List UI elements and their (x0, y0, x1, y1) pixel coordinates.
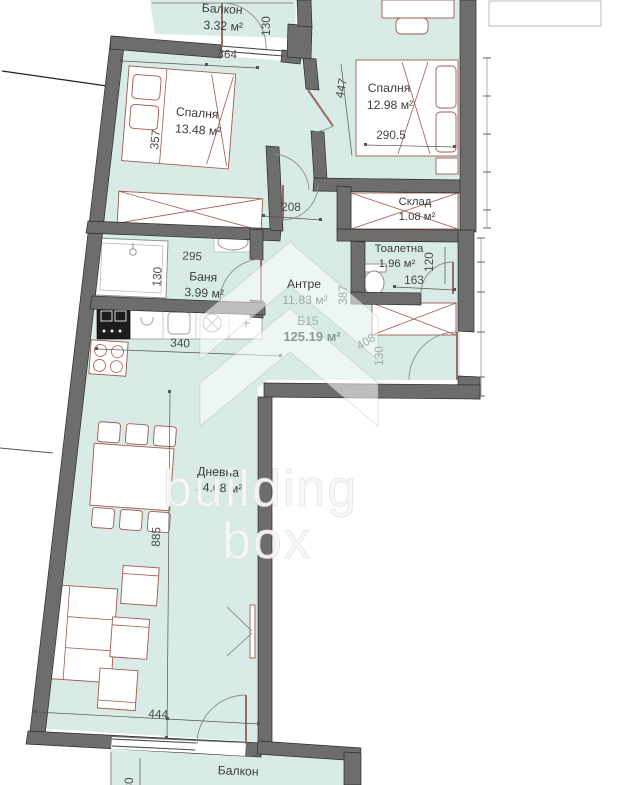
dim-living-len: 885 (149, 526, 164, 547)
dim-living-width: 444 (148, 706, 169, 721)
dim-kitchen: 340 (170, 336, 191, 351)
label-balcony-top-area: 3.32 м² (203, 18, 243, 34)
label-toilet-area: 1.96 м² (379, 258, 416, 270)
label-bedroom-left-name: Спалня (176, 105, 219, 122)
label-storage-name: Склад (399, 196, 432, 208)
label-hallway-area: 11.83 м² (282, 293, 327, 307)
dim-corridor: 208 (281, 200, 301, 214)
dim-balcony-bottom-depth: 80 (122, 777, 136, 785)
label-bedroom-right-name: Спалня (368, 81, 411, 95)
kitchen-appliance (97, 307, 130, 339)
dim-hall-c: 130 (372, 346, 386, 366)
label-toilet-name: Тоалетна (375, 243, 424, 255)
dim-top-width: 364 (217, 46, 238, 61)
label-bathroom-name: Баня (189, 269, 218, 284)
stove (89, 340, 128, 376)
label-unit-id: Б15 (297, 314, 319, 328)
label-hallway-name: Антре (287, 277, 321, 291)
wardrobe-hallway (372, 303, 456, 335)
dim-toilet-depth: 120 (422, 252, 436, 272)
dim-bed-right-width: 290.5 (376, 128, 406, 142)
dim-bath-width: 295 (182, 248, 203, 263)
dim-balcony-top-depth: 130 (259, 16, 273, 36)
watermark-line1: building (163, 460, 358, 518)
label-balcony-bottom-name: Балкон (217, 763, 258, 778)
floor-plan-page: Балкон 3.32 м² 364 130 Спалня 13.48 м² 3… (0, 0, 625, 785)
label-bedroom-right-area: 12.98 м² (367, 98, 413, 112)
label-storage-area: 1.08 м² (399, 211, 436, 223)
label-bathroom-area: 3.99 м² (184, 285, 224, 301)
floor-plan-svg: Балкон 3.32 м² 364 130 Спалня 13.48 м² 3… (0, 0, 625, 785)
dim-hall-a: 387 (336, 285, 350, 305)
label-unit-area: 125.19 м² (283, 329, 341, 344)
dim-bed-left-len: 357 (147, 129, 163, 150)
watermark-line2: box (222, 512, 312, 570)
label-balcony-top-name: Балкон (201, 1, 243, 17)
dim-bath-depth: 130 (149, 266, 164, 287)
dim-toilet-width: 163 (404, 273, 424, 287)
